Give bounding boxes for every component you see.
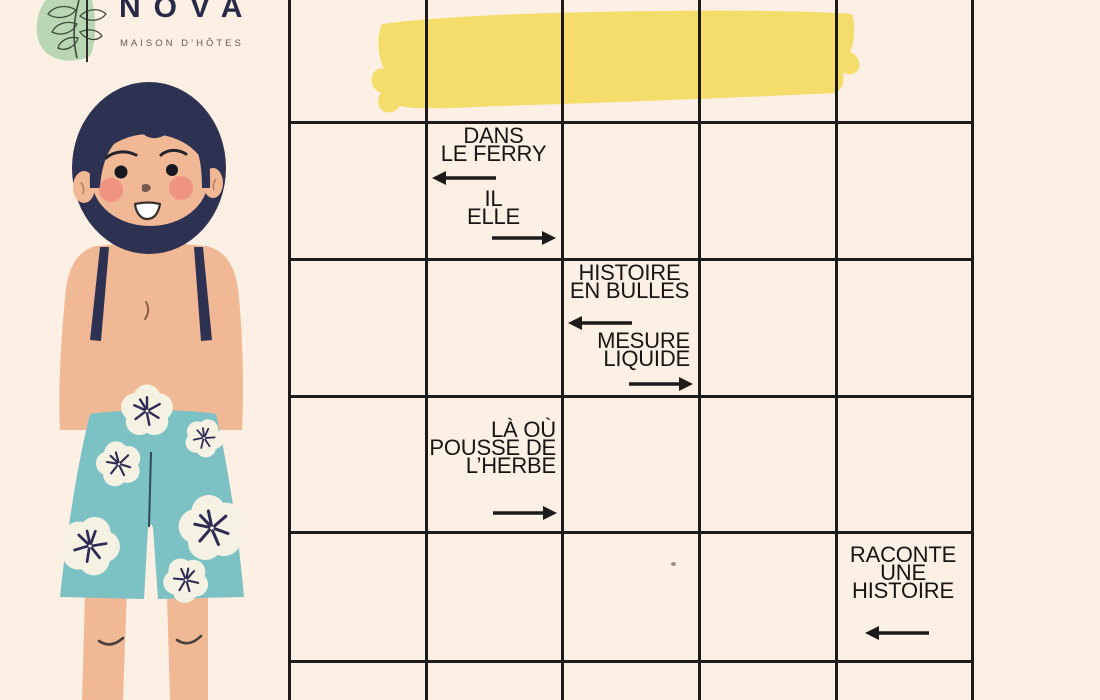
boy-illustration (0, 0, 280, 700)
worksheet-page: DANS LE FERRY IL ELLE HISTOIRE EN BULLES… (0, 0, 1100, 700)
